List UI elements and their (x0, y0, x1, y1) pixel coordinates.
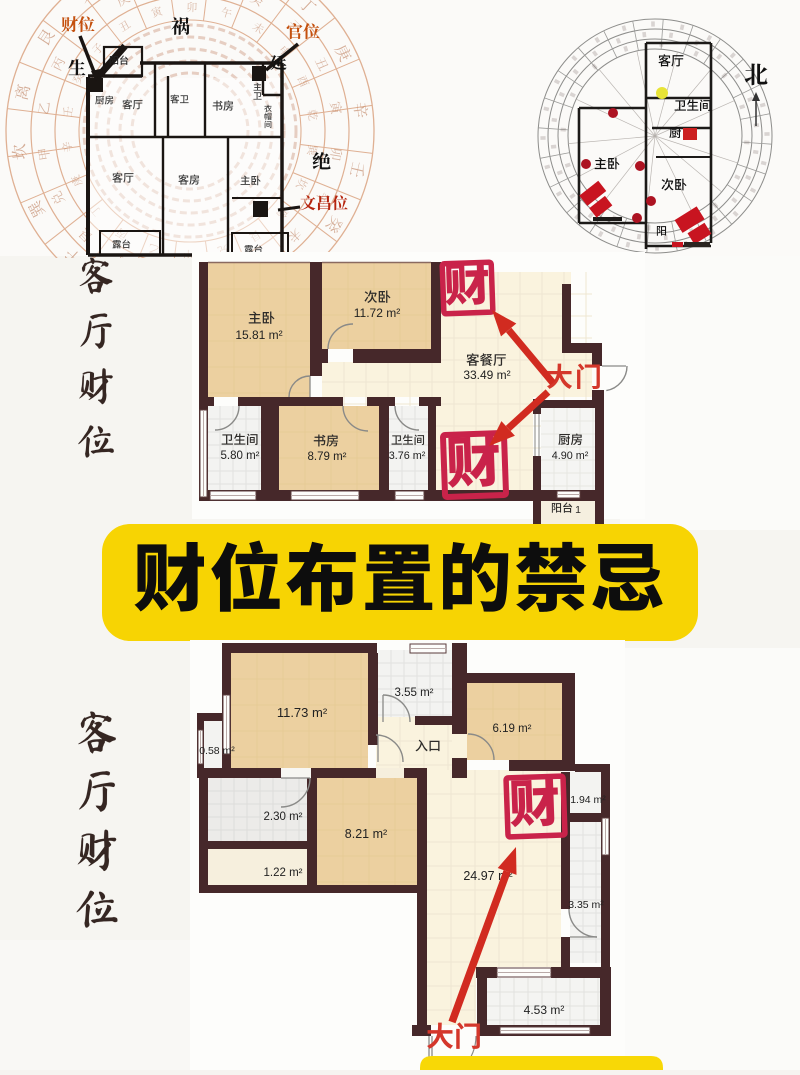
svg-text:15.81 m²: 15.81 m² (235, 328, 282, 342)
svg-text:3.76 m²: 3.76 m² (389, 450, 426, 462)
svg-text:0.58 m²: 0.58 m² (199, 745, 235, 757)
svg-text:6.19 m²: 6.19 m² (493, 723, 532, 735)
svg-text:8.21 m²: 8.21 m² (345, 827, 387, 841)
svg-text:4.90 m²: 4.90 m² (552, 450, 589, 462)
svg-text:8.79 m²: 8.79 m² (308, 451, 347, 463)
svg-text:1.94 m²: 1.94 m² (570, 794, 606, 806)
svg-text:2.30 m²: 2.30 m² (264, 811, 303, 823)
svg-text:1: 1 (575, 504, 581, 516)
svg-text:3.35 m²: 3.35 m² (568, 899, 604, 911)
svg-text:11.73 m²: 11.73 m² (277, 705, 328, 720)
svg-text:33.49 m²: 33.49 m² (463, 368, 510, 382)
svg-text:3.55 m²: 3.55 m² (395, 687, 434, 699)
svg-text:1.22 m²: 1.22 m² (264, 867, 303, 879)
svg-text:4.53 m²: 4.53 m² (524, 1003, 565, 1017)
svg-text:11.72 m²: 11.72 m² (354, 306, 400, 320)
svg-text:5.80 m²: 5.80 m² (221, 450, 260, 462)
